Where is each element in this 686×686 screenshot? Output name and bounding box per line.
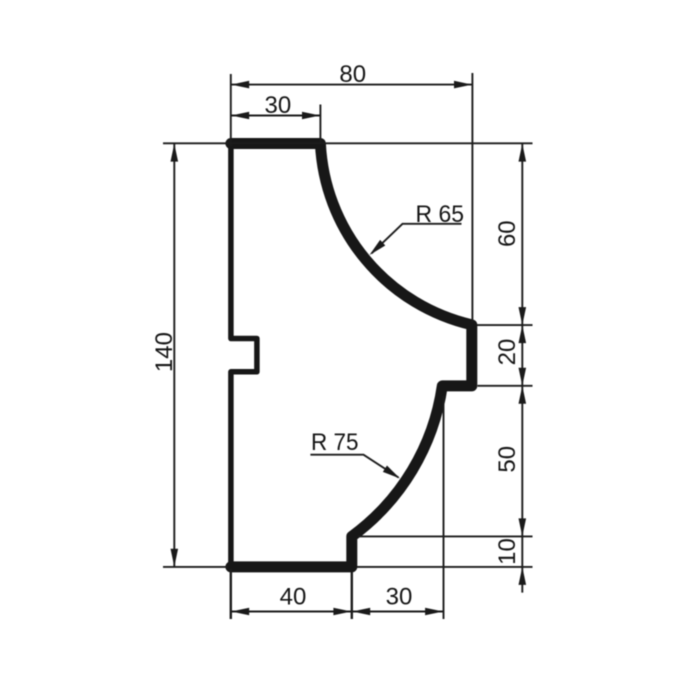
svg-text:20: 20 [494, 339, 521, 366]
svg-text:50: 50 [494, 446, 521, 473]
svg-text:30: 30 [386, 584, 413, 611]
svg-text:R 75: R 75 [311, 429, 359, 456]
svg-text:80: 80 [339, 61, 366, 88]
svg-text:10: 10 [494, 538, 521, 565]
svg-text:60: 60 [494, 220, 521, 247]
svg-text:30: 30 [265, 92, 292, 119]
svg-text:140: 140 [151, 332, 178, 372]
svg-text:R 65: R 65 [416, 201, 465, 228]
svg-text:40: 40 [280, 584, 307, 611]
